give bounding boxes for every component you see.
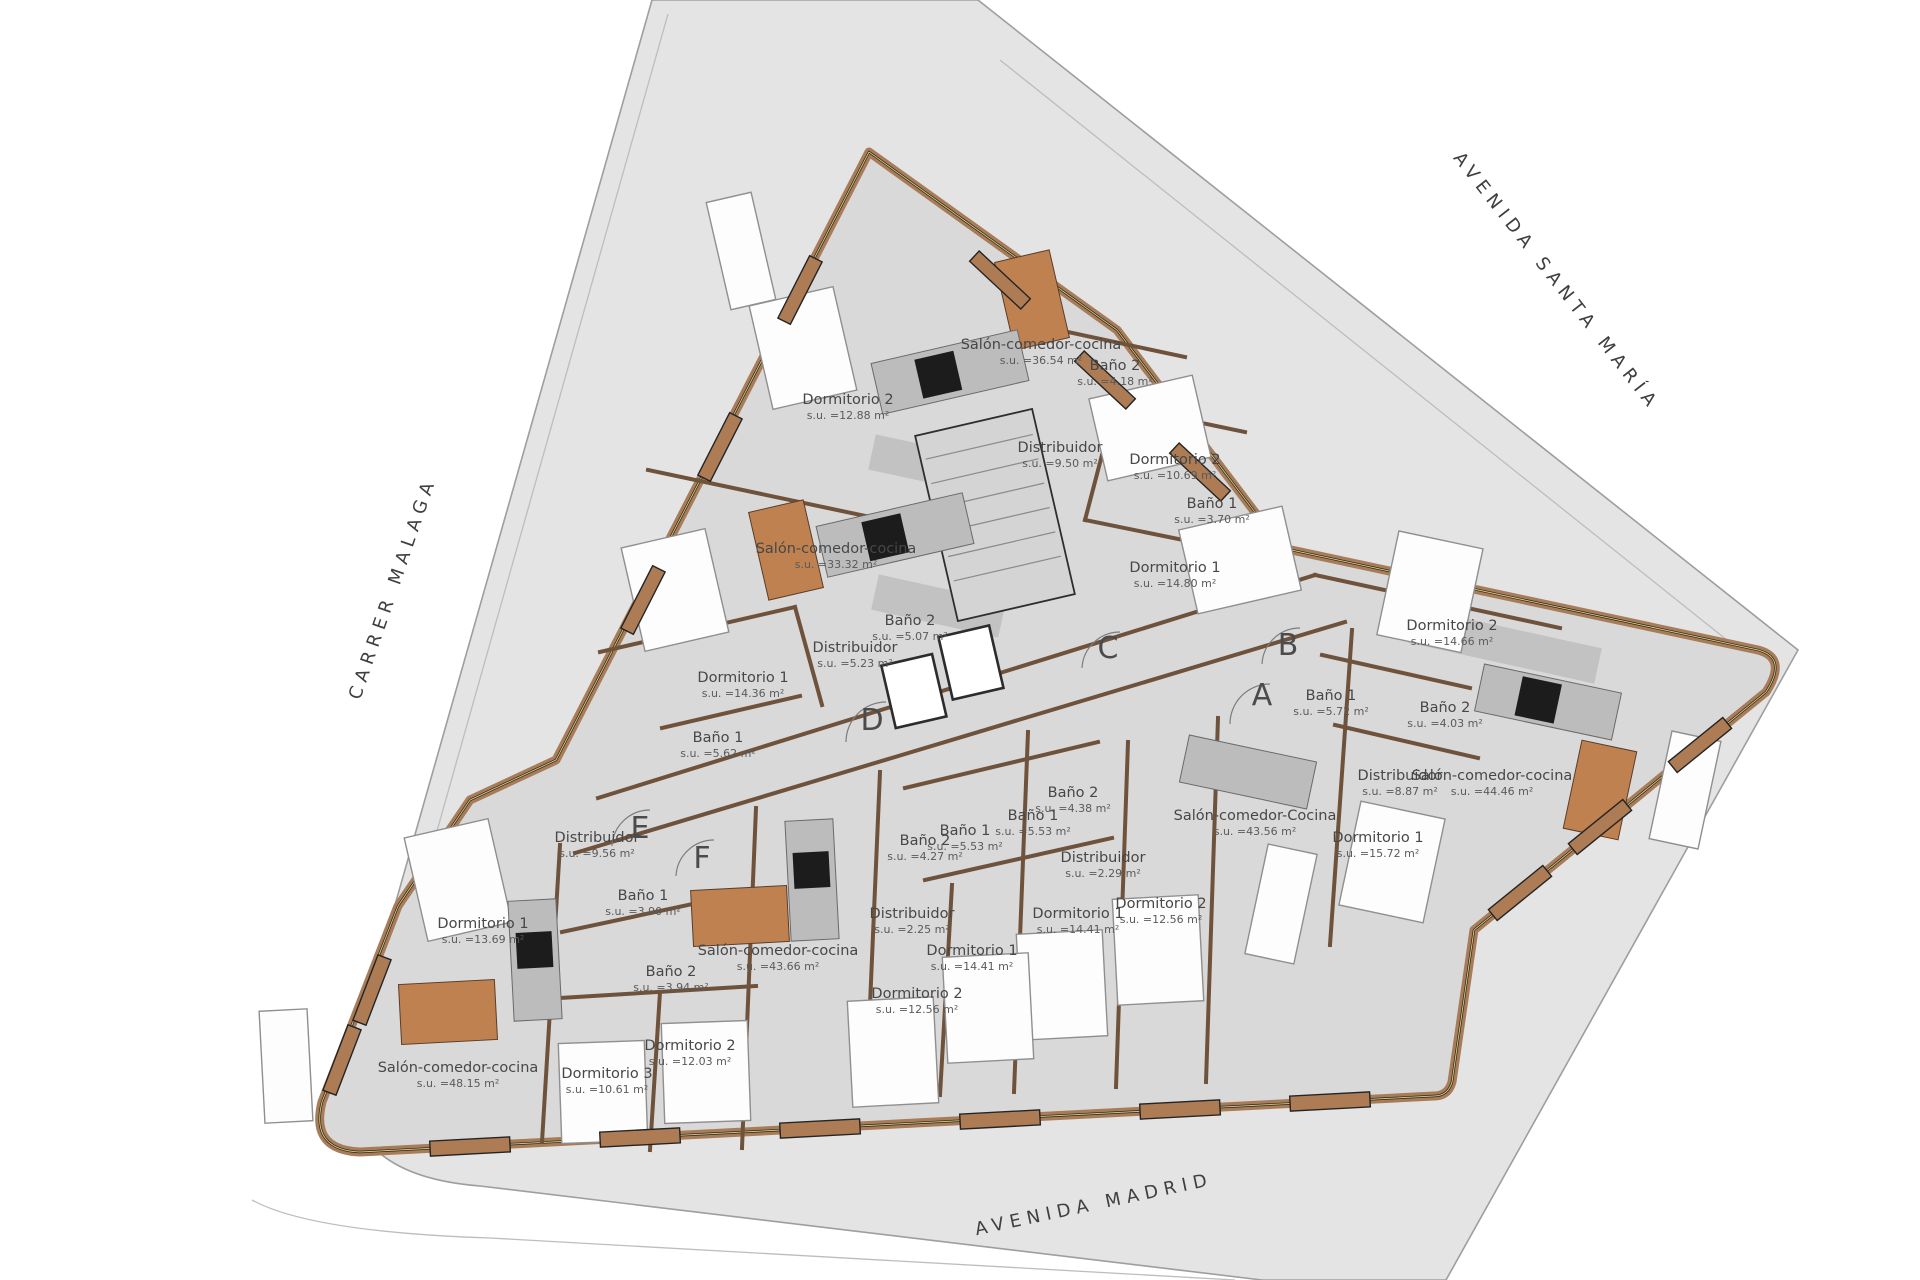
room-label: Dormitorio 2 xyxy=(1129,452,1220,468)
room-area-label: s.u. =2.25 m² xyxy=(874,923,950,936)
room-label: Baño 2 xyxy=(900,833,951,849)
room-label: Dormitorio 2 xyxy=(802,392,893,408)
room-area-label: s.u. =9.56 m² xyxy=(559,847,635,860)
room-label: Baño 2 xyxy=(1048,785,1099,801)
room-area-label: s.u. =14.66 m² xyxy=(1411,635,1494,648)
room-label: Salón-comedor-cocina xyxy=(1412,768,1573,784)
room-label: Dormitorio 2 xyxy=(871,986,962,1002)
room-label: Baño 2 xyxy=(646,964,697,980)
room-area-label: s.u. =4.27 m² xyxy=(887,850,963,863)
room-label: Dormitorio 1 xyxy=(697,670,788,686)
room-label: Dormitorio 2 xyxy=(1115,896,1206,912)
room-label: Dormitorio 1 xyxy=(1032,906,1123,922)
room-label: Dormitorio 1 xyxy=(1332,830,1423,846)
room-area-label: s.u. =15.72 m² xyxy=(1337,847,1420,860)
room-label: Dormitorio 2 xyxy=(1406,618,1497,634)
unit-letter-d: D xyxy=(860,703,883,738)
room-label: Salón-comedor-cocina xyxy=(961,337,1122,353)
room-area-label: s.u. =5.72 m² xyxy=(1293,705,1369,718)
room-area-label: s.u. =3.94 m² xyxy=(633,981,709,994)
room-label: Salón-comedor-cocina xyxy=(756,541,917,557)
unit-letter-f: F xyxy=(693,841,710,876)
room-area-label: s.u. =14.41 m² xyxy=(931,960,1014,973)
room-area-label: s.u. =12.56 m² xyxy=(1120,913,1203,926)
street-label: CARRER MALAGA xyxy=(345,474,441,702)
room-area-label: s.u. =43.56 m² xyxy=(1214,825,1297,838)
room-label: Salón-comedor-cocina xyxy=(698,943,859,959)
room-area-label: s.u. =43.66 m² xyxy=(737,960,820,973)
floor-plan: Salón-comedor-cocinas.u. =36.54 m²Dormit… xyxy=(0,0,1920,1280)
room-label: Distribuidor xyxy=(813,640,898,656)
room-label: Baño 1 xyxy=(1008,808,1059,824)
room-area-label: s.u. =33.32 m² xyxy=(795,558,878,571)
unit-letter-a: A xyxy=(1252,678,1273,713)
room-area-label: s.u. =9.50 m² xyxy=(1022,457,1098,470)
room-label: Baño 2 xyxy=(1420,700,1471,716)
room-area-label: s.u. =44.46 m² xyxy=(1451,785,1534,798)
room-label: Dormitorio 1 xyxy=(1129,560,1220,576)
room-area-label: s.u. =14.80 m² xyxy=(1134,577,1217,590)
room-area-label: s.u. =5.23 m² xyxy=(817,657,893,670)
room-label: Distribuidor xyxy=(1061,850,1146,866)
room-area-label: s.u. =8.87 m² xyxy=(1362,785,1438,798)
room-area-label: s.u. =5.62 m² xyxy=(680,747,756,760)
room-label: Dormitorio 1 xyxy=(437,916,528,932)
room-label: Distribuidor xyxy=(1018,440,1103,456)
unit-letter-c: C xyxy=(1098,631,1119,666)
street-label: AVENIDA SANTA MARÍA xyxy=(1449,148,1665,416)
room-area-label: s.u. =4.03 m² xyxy=(1407,717,1483,730)
room-label: Salón-comedor-Cocina xyxy=(1174,808,1337,824)
room-area-label: s.u. =3.90 m² xyxy=(605,905,681,918)
room-area-label: s.u. =3.70 m² xyxy=(1174,513,1250,526)
room-label: Dormitorio 2 xyxy=(644,1038,735,1054)
room-label: Salón-comedor-cocina xyxy=(378,1060,539,1076)
room-area-label: s.u. =5.53 m² xyxy=(995,825,1071,838)
room-label: Dormitorio 1 xyxy=(926,943,1017,959)
room-area-label: s.u. =12.03 m² xyxy=(649,1055,732,1068)
room-label: Baño 1 xyxy=(1187,496,1238,512)
room-label: Baño 1 xyxy=(618,888,669,904)
room-label: Baño 1 xyxy=(1306,688,1357,704)
room-area-label: s.u. =12.56 m² xyxy=(876,1003,959,1016)
room-area-label: s.u. =10.69 m² xyxy=(1134,469,1217,482)
room-area-label: s.u. =36.54 m² xyxy=(1000,354,1083,367)
room-label: Distribuidor xyxy=(555,830,640,846)
room-label: Baño 1 xyxy=(693,730,744,746)
room-area-label: s.u. =14.36 m² xyxy=(702,687,785,700)
room-label: Baño 2 xyxy=(885,613,936,629)
room-area-label: s.u. =48.15 m² xyxy=(417,1077,500,1090)
room-area-label: s.u. =12.88 m² xyxy=(807,409,890,422)
room-label: Baño 2 xyxy=(1090,358,1141,374)
room-area-label: s.u. =10.61 m² xyxy=(566,1083,649,1096)
room-area-label: s.u. =2.29 m² xyxy=(1065,867,1141,880)
room-area-label: s.u. =13.69 m² xyxy=(442,933,525,946)
unit-letter-b: B xyxy=(1278,628,1299,663)
room-area-label: s.u. =4.18 m² xyxy=(1077,375,1153,388)
room-label: Distribuidor xyxy=(870,906,955,922)
room-label: Dormitorio 3 xyxy=(561,1066,652,1082)
unit-letter-e: E xyxy=(631,811,650,846)
room-area-label: s.u. =14.41 m² xyxy=(1037,923,1120,936)
